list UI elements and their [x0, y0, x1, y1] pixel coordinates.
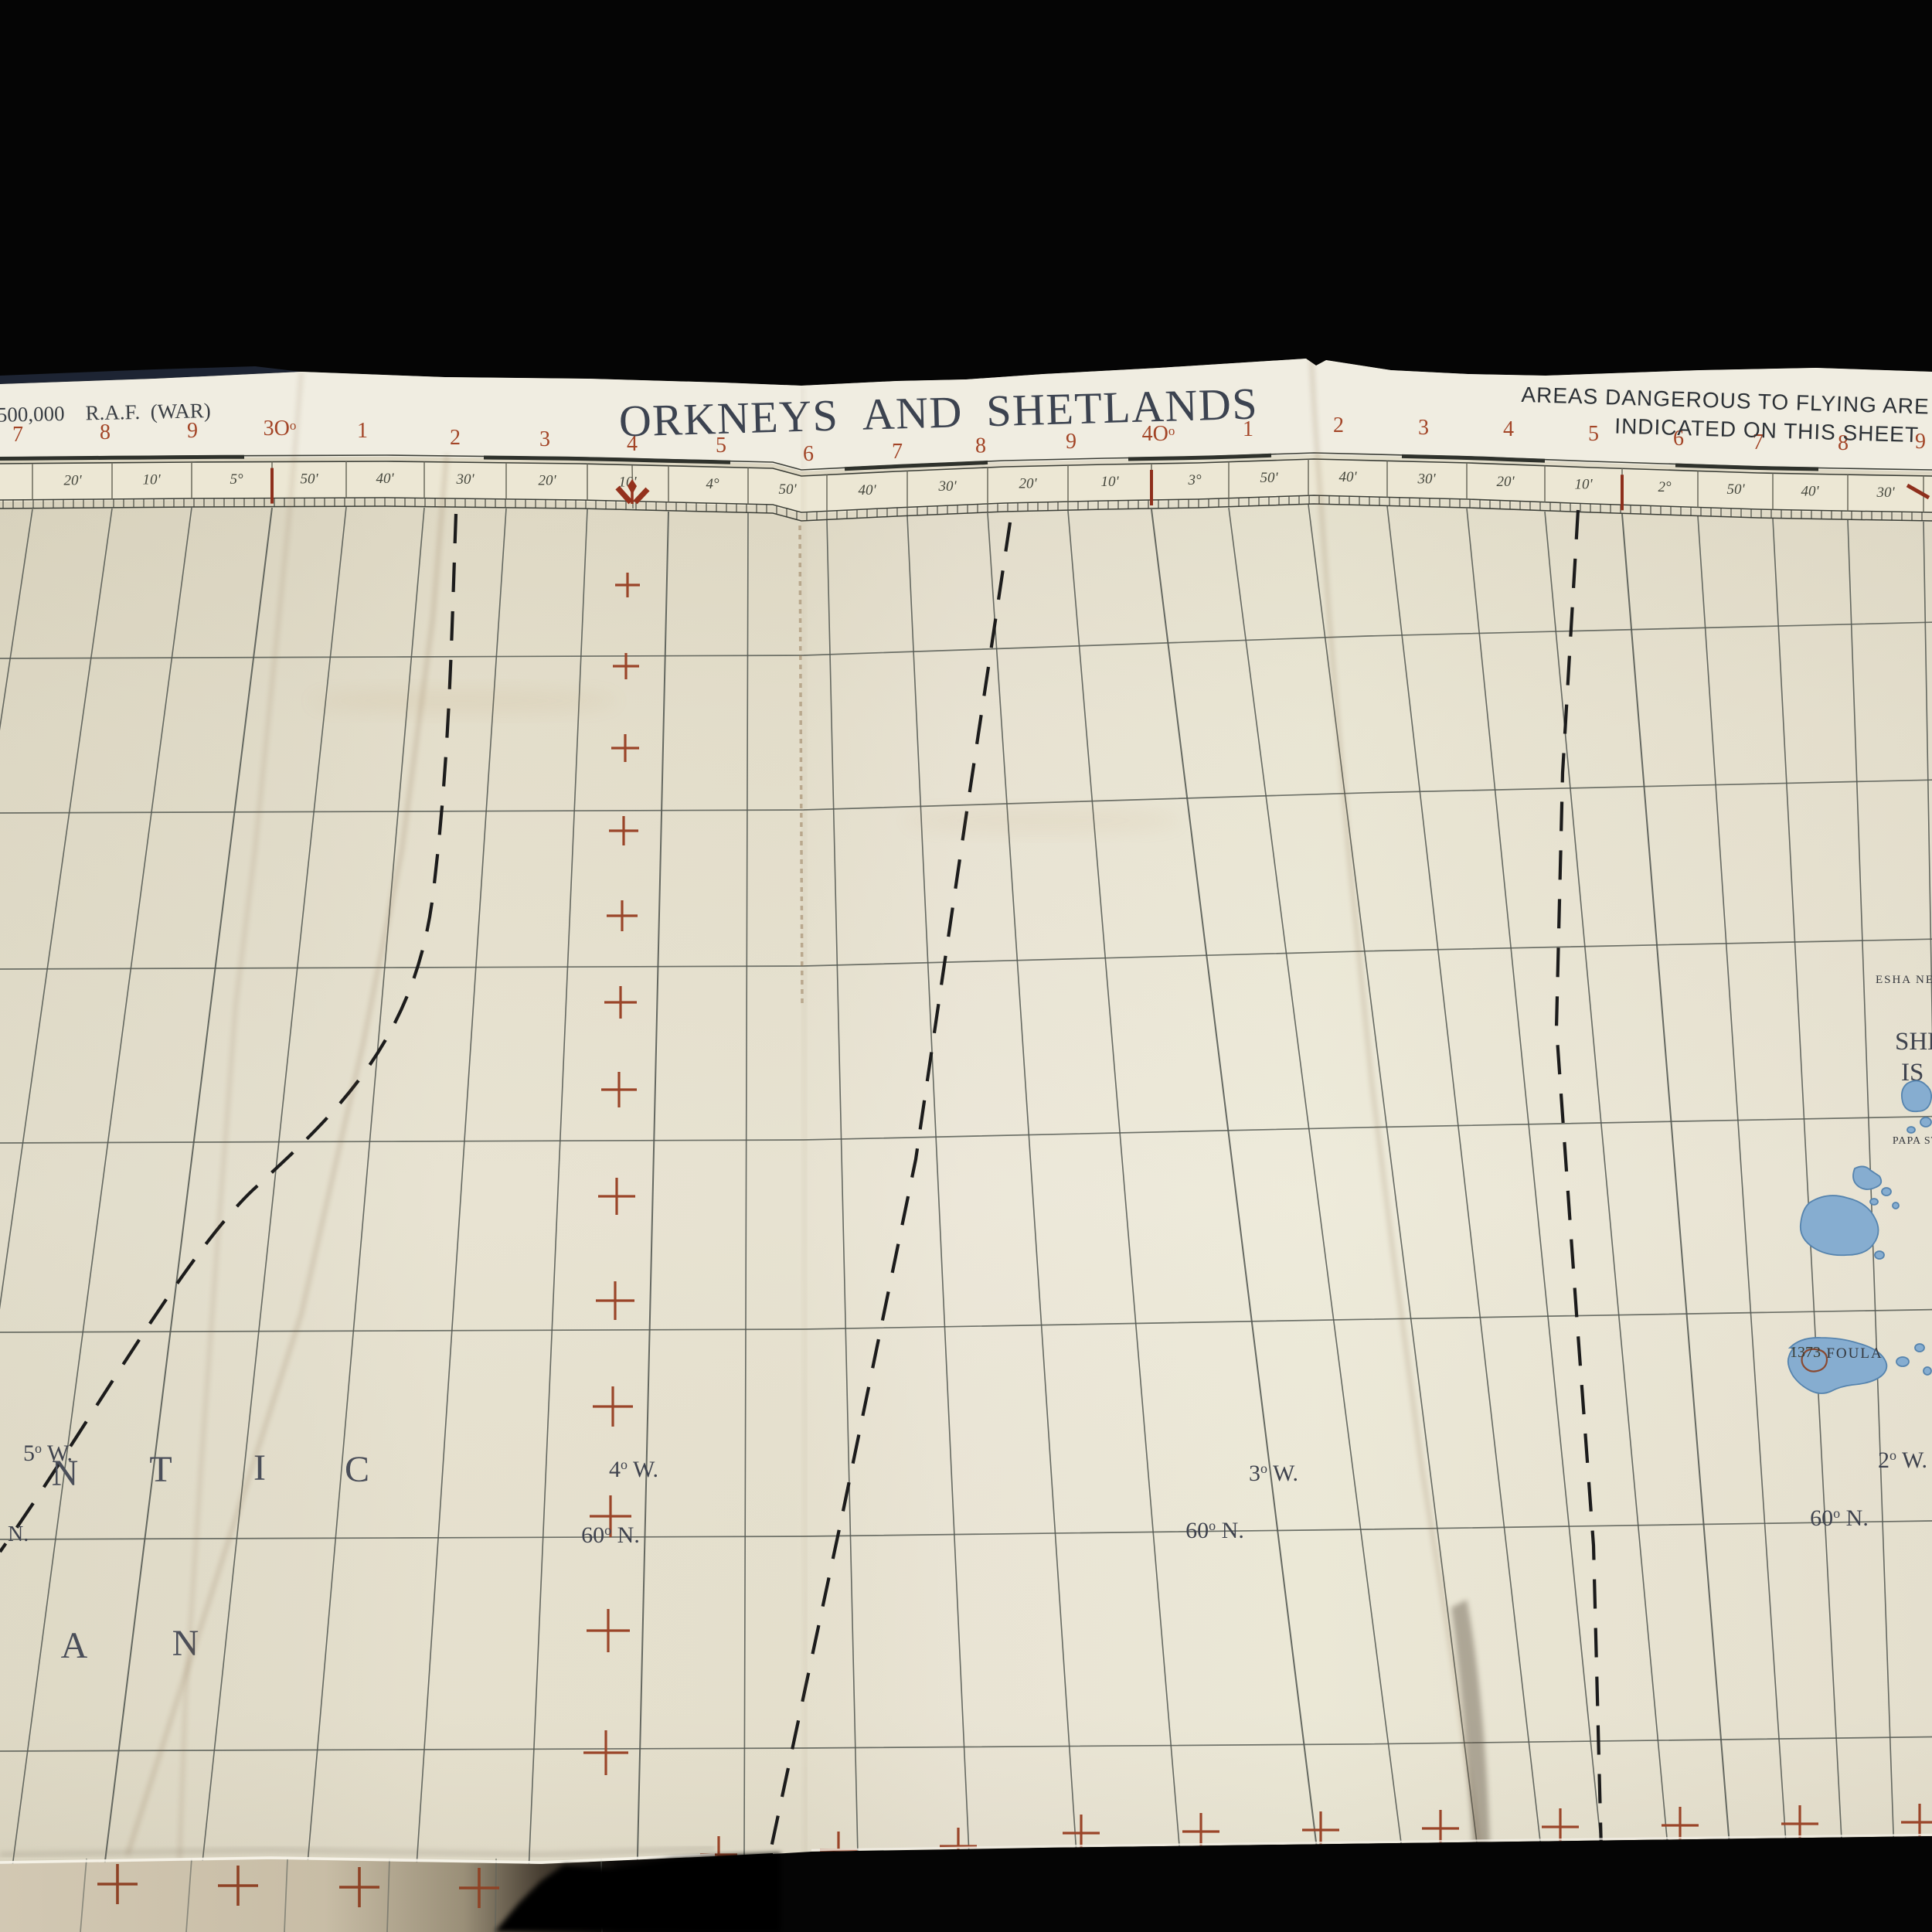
svg-text:50': 50' — [1260, 470, 1278, 486]
svg-text:A: A — [61, 1625, 88, 1666]
svg-text:3: 3 — [539, 427, 550, 451]
svg-text:50': 50' — [300, 471, 318, 487]
svg-text:20': 20' — [63, 472, 82, 488]
svg-text:20': 20' — [1496, 474, 1515, 490]
svg-text:ESHA NE: ESHA NE — [1876, 974, 1932, 986]
svg-text:C: C — [345, 1449, 369, 1490]
svg-text:3°: 3° — [1187, 472, 1202, 488]
svg-text:7: 7 — [12, 423, 23, 447]
svg-text:30': 30' — [1876, 485, 1895, 501]
svg-text:1: 1 — [357, 419, 368, 443]
svg-text:4°: 4° — [706, 476, 719, 492]
svg-text:T: T — [149, 1449, 172, 1490]
svg-text:9: 9 — [187, 419, 198, 443]
svg-text:2o W.: 2o W. — [1878, 1447, 1927, 1473]
svg-text:10': 10' — [142, 471, 161, 488]
svg-text:10': 10' — [1100, 474, 1119, 490]
svg-text:5: 5 — [1588, 422, 1599, 446]
svg-text:6: 6 — [803, 442, 814, 466]
svg-text:500,000 R.A.F. (WAR): 500,000 R.A.F. (WAR) — [0, 399, 211, 427]
svg-text:30': 30' — [937, 478, 957, 495]
svg-text:30': 30' — [1417, 471, 1436, 488]
svg-text:40': 40' — [1338, 469, 1357, 485]
svg-text:1373: 1373 — [1790, 1344, 1821, 1361]
svg-text:N: N — [52, 1453, 79, 1494]
svg-text:20': 20' — [538, 473, 556, 489]
svg-text:7: 7 — [892, 440, 903, 464]
svg-text:2°: 2° — [1658, 479, 1672, 495]
svg-text:FOULA: FOULA — [1826, 1345, 1883, 1362]
svg-text:20': 20' — [1019, 475, 1037, 492]
svg-text:40': 40' — [1801, 483, 1819, 499]
svg-text:4o W.: 4o W. — [609, 1457, 658, 1482]
svg-text:SHE: SHE — [1895, 1028, 1932, 1056]
svg-text:3o W.: 3o W. — [1249, 1461, 1298, 1486]
svg-text:4: 4 — [1503, 417, 1514, 441]
svg-text:5°: 5° — [230, 471, 243, 488]
svg-text:50': 50' — [778, 481, 797, 498]
svg-text:2: 2 — [450, 426, 461, 450]
svg-text:3: 3 — [1418, 416, 1429, 440]
svg-text:8: 8 — [975, 434, 986, 457]
svg-text:10': 10' — [1574, 477, 1593, 493]
svg-text:I: I — [253, 1447, 266, 1488]
svg-text:50': 50' — [1726, 481, 1745, 498]
svg-text:40': 40' — [376, 471, 394, 487]
svg-text:30': 30' — [455, 471, 474, 488]
svg-text:PAPA STO: PAPA STO — [1893, 1135, 1932, 1147]
svg-text:40': 40' — [858, 482, 876, 498]
svg-text:2: 2 — [1333, 413, 1344, 437]
svg-text:N.: N. — [8, 1522, 29, 1546]
